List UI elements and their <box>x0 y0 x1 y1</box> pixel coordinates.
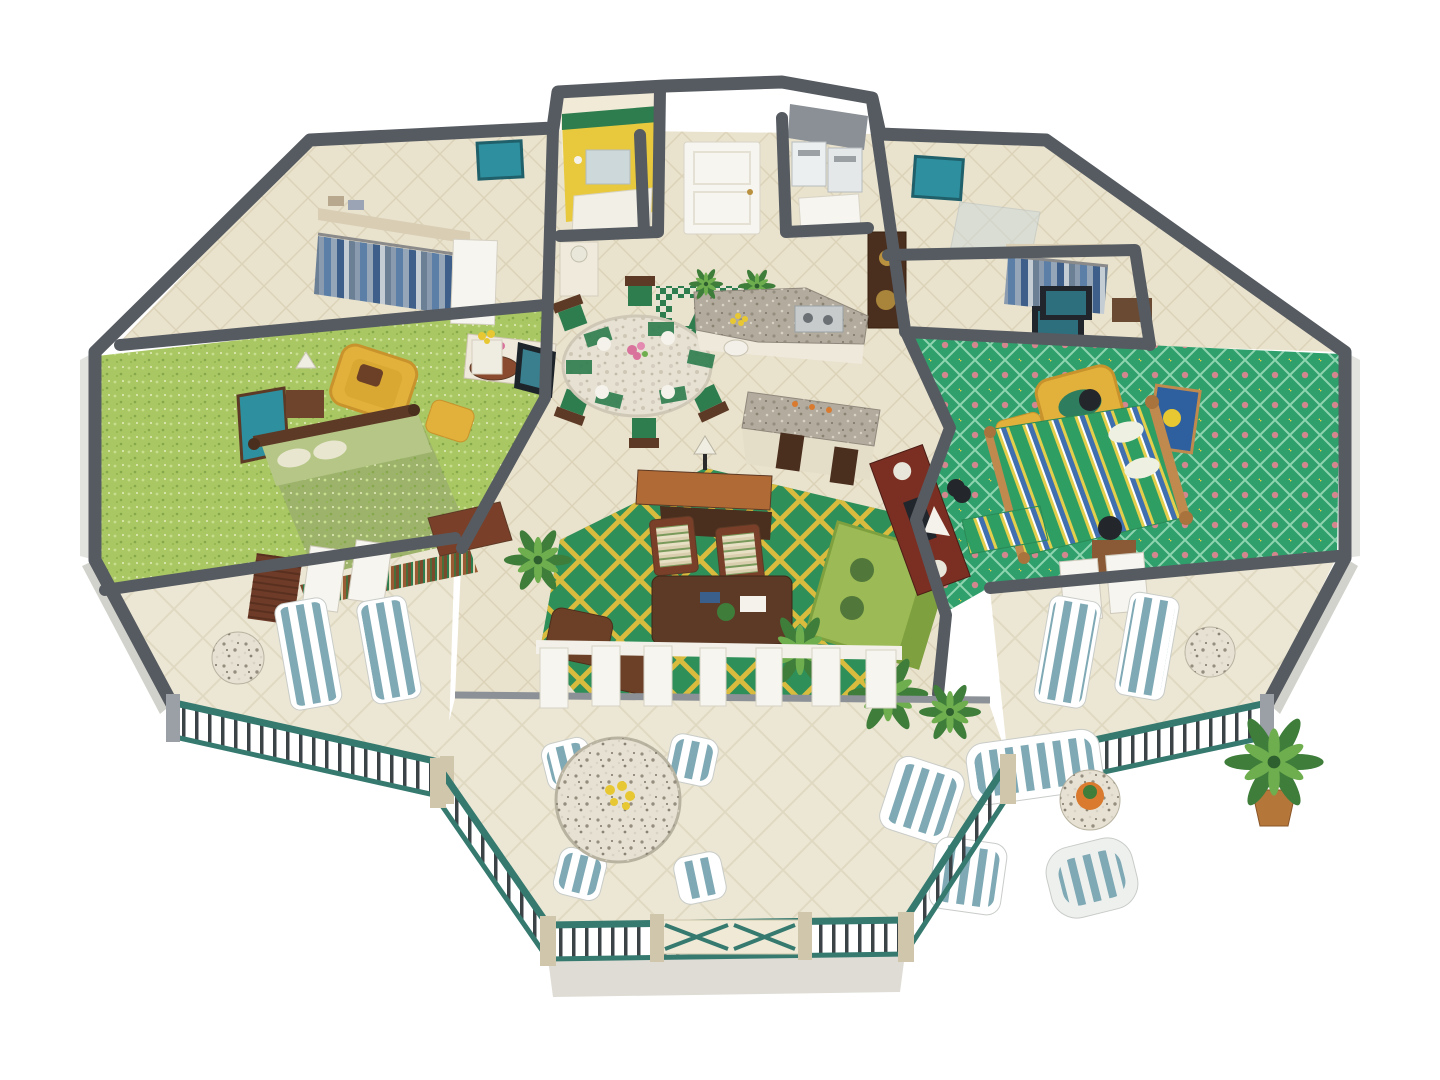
washer-slot <box>798 150 820 156</box>
door-pillar-6 <box>812 648 840 706</box>
bath-mirror <box>586 150 630 184</box>
terrace-table-speckle <box>556 738 680 862</box>
corner-post-1 <box>166 694 180 742</box>
dryer-slot <box>834 156 856 162</box>
armchair-1 <box>649 516 699 576</box>
armchair-2 <box>715 524 765 584</box>
gate-panel <box>660 920 800 954</box>
nightstand <box>286 390 324 418</box>
knob-3 <box>826 407 832 413</box>
front-door <box>684 142 760 234</box>
door-pillar-1 <box>540 648 568 708</box>
knob-1 <box>792 401 798 407</box>
dryer <box>828 148 862 192</box>
post-6 <box>1000 754 1016 804</box>
door-pillar-3 <box>644 646 672 706</box>
floorplan-svg <box>0 0 1440 1080</box>
post-4 <box>798 912 812 960</box>
cabinet-decor-2 <box>876 290 896 310</box>
folded-towels-1 <box>328 196 344 206</box>
table-plant <box>717 603 735 621</box>
bar-stool-1 <box>776 433 805 472</box>
bar-stool-2 <box>830 447 859 486</box>
blue-book <box>700 592 720 603</box>
side-table-speckle <box>212 632 264 684</box>
writing-desk <box>636 470 772 510</box>
burner-2 <box>823 315 833 325</box>
bath-artwork <box>477 141 523 179</box>
bed-post-3 <box>984 426 996 438</box>
chair-back <box>629 438 659 448</box>
door-pillar-2 <box>592 646 620 706</box>
knob-2 <box>809 404 815 410</box>
post-1 <box>430 758 446 808</box>
chair-seat <box>628 286 652 306</box>
door-pillar-7 <box>866 650 896 708</box>
door-pillar-5 <box>756 648 782 706</box>
artwork-accent <box>1163 409 1181 427</box>
chair-back <box>625 276 655 286</box>
laundry-closet <box>788 104 868 238</box>
bed-post-4 <box>1018 552 1030 564</box>
side-table-speckle <box>1185 627 1235 677</box>
chair-seat <box>632 418 656 438</box>
sofa-pillow-1 <box>850 558 874 582</box>
foyer-lamp <box>571 246 587 262</box>
door-pillar-4 <box>700 648 726 706</box>
dark-lamp-2 <box>1079 389 1101 411</box>
flower-table <box>472 340 502 374</box>
washer <box>792 142 826 186</box>
sconce-left <box>574 156 582 164</box>
tub-chair <box>1041 832 1144 923</box>
bed-post-2 <box>408 404 420 416</box>
wall-tv-screen <box>1046 291 1086 315</box>
open-book <box>740 596 766 612</box>
bath-artwork <box>913 156 964 199</box>
dark-lamp-1 <box>1098 516 1122 540</box>
floorplan-render <box>0 0 1440 1080</box>
post-3 <box>650 914 664 962</box>
terrace-chair-4 <box>672 850 729 907</box>
post-2 <box>540 916 556 966</box>
cooktop <box>795 306 843 332</box>
burner-1 <box>803 313 813 323</box>
bed-post-1 <box>248 438 260 450</box>
post-5 <box>898 912 914 962</box>
floor-lamp <box>947 479 965 497</box>
terrace-gate <box>660 920 800 954</box>
bed-post-1 <box>1145 395 1159 409</box>
door-knob <box>747 189 753 195</box>
bed-post-2 <box>1179 511 1193 525</box>
sink <box>724 340 748 356</box>
sofa-pillow-2 <box>840 596 864 620</box>
planter-greens <box>1083 785 1097 799</box>
folded-towels-2 <box>348 200 364 210</box>
